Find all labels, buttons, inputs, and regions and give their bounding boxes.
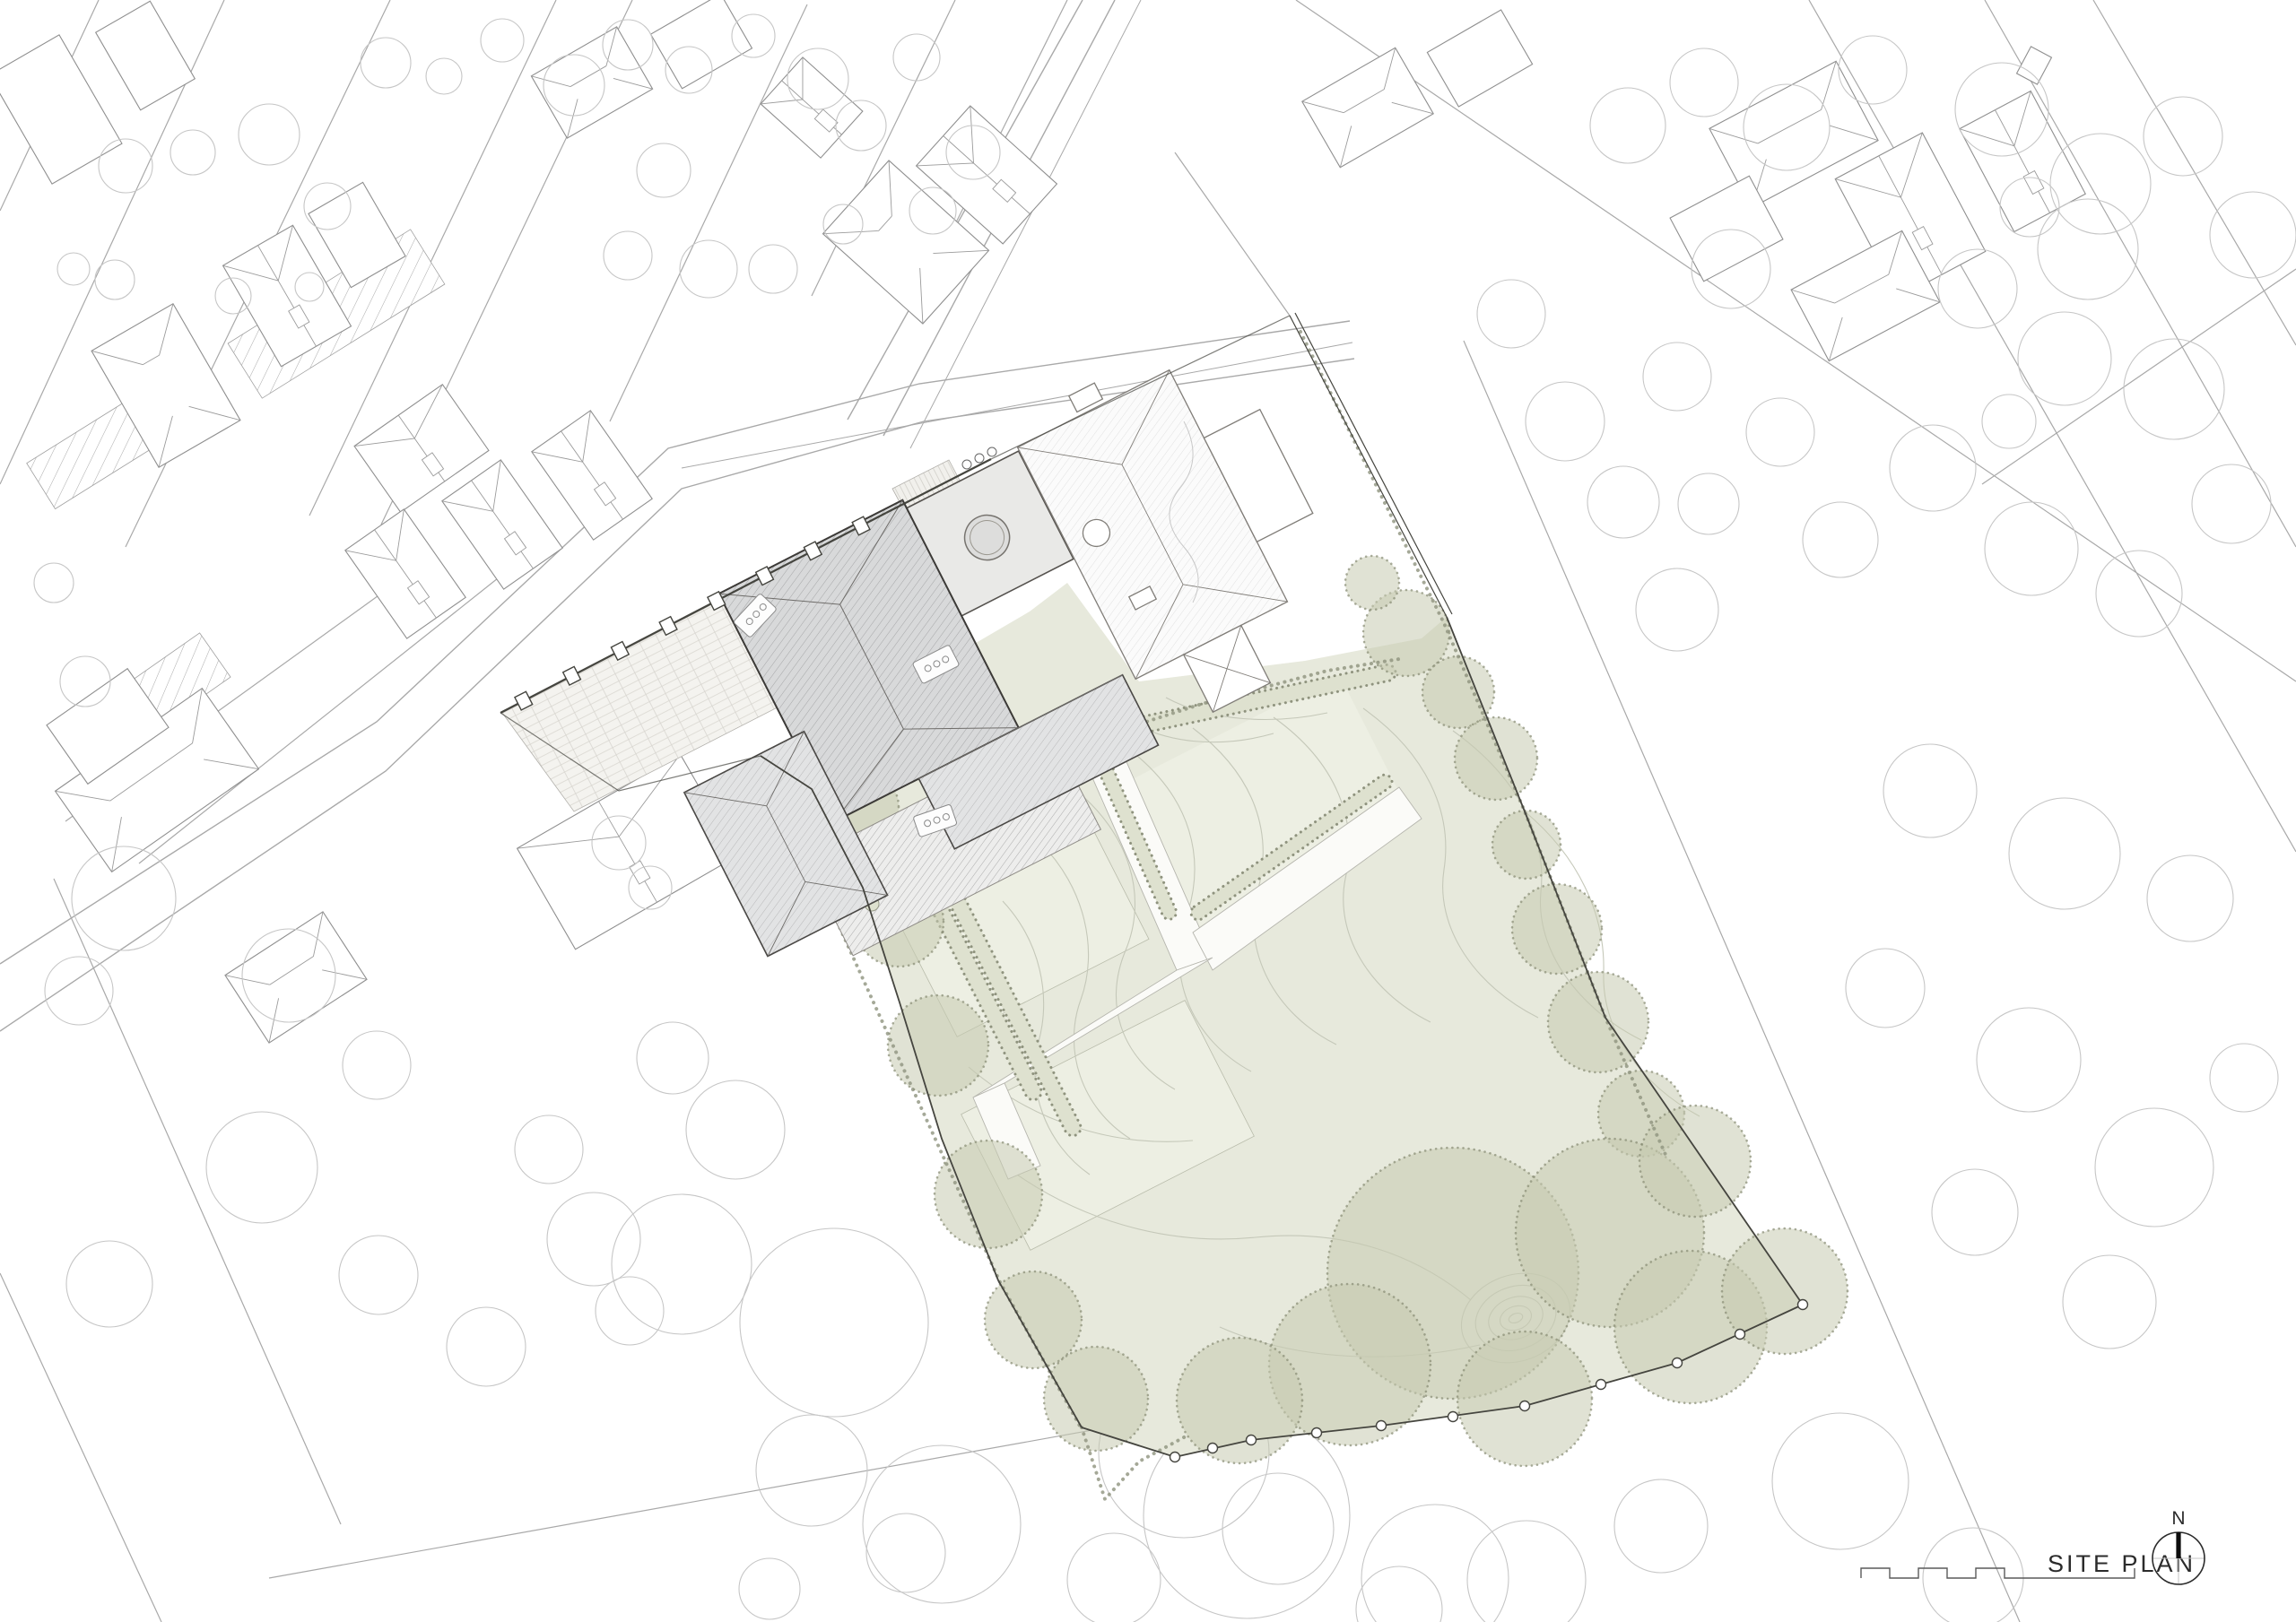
tree-outline-icon [2038, 199, 2138, 299]
tree-outline-icon [339, 1236, 418, 1314]
fence-post [1673, 1358, 1683, 1368]
tree-canopy-icon [1044, 1347, 1148, 1451]
tree-outline-icon [1977, 1008, 2081, 1112]
tree-outline-icon [34, 563, 74, 603]
tree-outline-icon [447, 1307, 526, 1386]
tree-outline-icon [2144, 97, 2222, 176]
north-needle [2176, 1532, 2180, 1558]
tree-outline-icon [2095, 1108, 2213, 1227]
tree-canopy-icon [985, 1271, 1082, 1368]
tree-outline-icon [1746, 398, 1814, 466]
tree-canopy-icon [1455, 717, 1537, 800]
context-building [1960, 91, 2085, 231]
context-building [2017, 47, 2052, 84]
tree-outline-icon [740, 1228, 928, 1417]
tree-outline-icon [893, 34, 940, 81]
tree-outline-icon [1526, 382, 1605, 461]
fence-post [1247, 1436, 1257, 1445]
fence-post [1312, 1428, 1322, 1438]
tree-outline-icon [1932, 1169, 2018, 1255]
tree-outline-icon [2063, 1255, 2156, 1349]
fence-post [1208, 1444, 1218, 1453]
tree-outline-icon [1477, 280, 1545, 348]
context-building [225, 912, 367, 1043]
tree-outline-icon [2147, 855, 2233, 941]
tree-outline-icon [99, 139, 152, 193]
tree-outline-icon [1938, 249, 2017, 328]
tree-outline-icon [1772, 1413, 1909, 1549]
site-plan-drawing: SITE PLAN N [0, 0, 2296, 1622]
tree-outline-icon [680, 240, 737, 298]
drawing-title: SITE PLAN [2048, 1550, 2196, 1577]
tree-outline-icon [1067, 1533, 1161, 1622]
fence-post [1448, 1412, 1458, 1422]
context-building [531, 27, 652, 138]
fence-post [1596, 1380, 1606, 1390]
tree-outline-icon [426, 58, 462, 94]
tree-outline-icon [1985, 502, 2078, 595]
tree-outline-icon [686, 1080, 785, 1179]
tree-outline-icon [1222, 1473, 1334, 1584]
tree-outline-icon [1356, 1566, 1442, 1622]
tree-outline-icon [1587, 466, 1659, 538]
context-building [442, 460, 562, 589]
tree-outline-icon [1361, 1505, 1509, 1622]
tree-outline-icon [1846, 949, 1925, 1028]
title-block: SITE PLAN N [1861, 1508, 2205, 1584]
tree-outline-icon [1678, 473, 1739, 534]
tree-canopy-icon [1512, 884, 1602, 974]
tree-outline-icon [170, 130, 215, 175]
tree-outline-icon [2124, 339, 2224, 439]
tree-outline-icon [1614, 1479, 1708, 1573]
tree-outline-icon [1467, 1521, 1586, 1622]
tree-outline-icon [749, 245, 797, 293]
tree-outline-icon [343, 1031, 411, 1099]
tree-outline-icon [2210, 192, 2296, 278]
tree-outline-icon [1643, 343, 1711, 411]
fence-post [1798, 1300, 1808, 1310]
tree-canopy-icon [1177, 1338, 1302, 1463]
tree-outline-icon [239, 104, 300, 165]
fence-post [1520, 1401, 1530, 1411]
tree-canopy-icon [1492, 811, 1561, 879]
context-building [0, 35, 122, 184]
tree-outline-icon [1923, 1528, 2023, 1622]
context-building [345, 509, 465, 638]
fence-post [1170, 1453, 1180, 1462]
tree-outline-icon [637, 1022, 709, 1094]
tree-outline-icon [1636, 568, 1718, 651]
tree-outline-icon [206, 1112, 317, 1223]
tree-outline-icon [66, 1241, 152, 1327]
tree-outline-icon [756, 1415, 867, 1526]
site-plan-sheet: SITE PLAN N [0, 0, 2296, 1622]
north-label: N [2171, 1508, 2185, 1529]
context-building [532, 411, 652, 540]
tree-outline-icon [604, 231, 652, 280]
context-building [96, 1, 196, 110]
tree-outline-icon [2009, 798, 2120, 909]
fence-post [1377, 1421, 1387, 1431]
tree-outline-icon [95, 260, 135, 299]
tree-outline-icon [2018, 312, 2111, 405]
tree-outline-icon [1890, 425, 1976, 511]
tree-outline-icon [361, 38, 411, 88]
tree-outline-icon [866, 1514, 945, 1592]
tree-outline-icon [1670, 48, 1738, 117]
tree-canopy-icon [935, 1141, 1042, 1248]
context-building [1302, 48, 1433, 168]
tree-outline-icon [481, 19, 524, 62]
tree-outline-icon [739, 1558, 800, 1619]
tree-canopy-icon [1639, 1106, 1751, 1217]
tree-outline-icon [515, 1115, 583, 1184]
tree-canopy-icon [888, 995, 988, 1096]
tree-outline-icon [547, 1193, 640, 1286]
tree-outline-icon [1803, 502, 1878, 577]
tree-canopy-icon [1457, 1331, 1592, 1466]
tree-outline-icon [2210, 1044, 2278, 1112]
context-garden-strips [27, 230, 445, 775]
tree-canopy-icon [1422, 656, 1494, 728]
tree-outline-icon [57, 253, 90, 285]
tree-outline-icon [2192, 464, 2271, 543]
tree-outline-icon [1883, 744, 1977, 837]
tree-outline-icon [1590, 88, 1665, 163]
tree-outline-icon [2096, 551, 2182, 637]
fence-post [1735, 1330, 1745, 1340]
tree-outline-icon [637, 143, 691, 197]
tree-outline-icon [45, 957, 113, 1025]
tree-canopy-icon [1345, 556, 1399, 610]
tree-outline-icon [863, 1445, 1021, 1603]
tree-outline-icon [1982, 395, 2036, 448]
context-building [1427, 10, 1532, 107]
